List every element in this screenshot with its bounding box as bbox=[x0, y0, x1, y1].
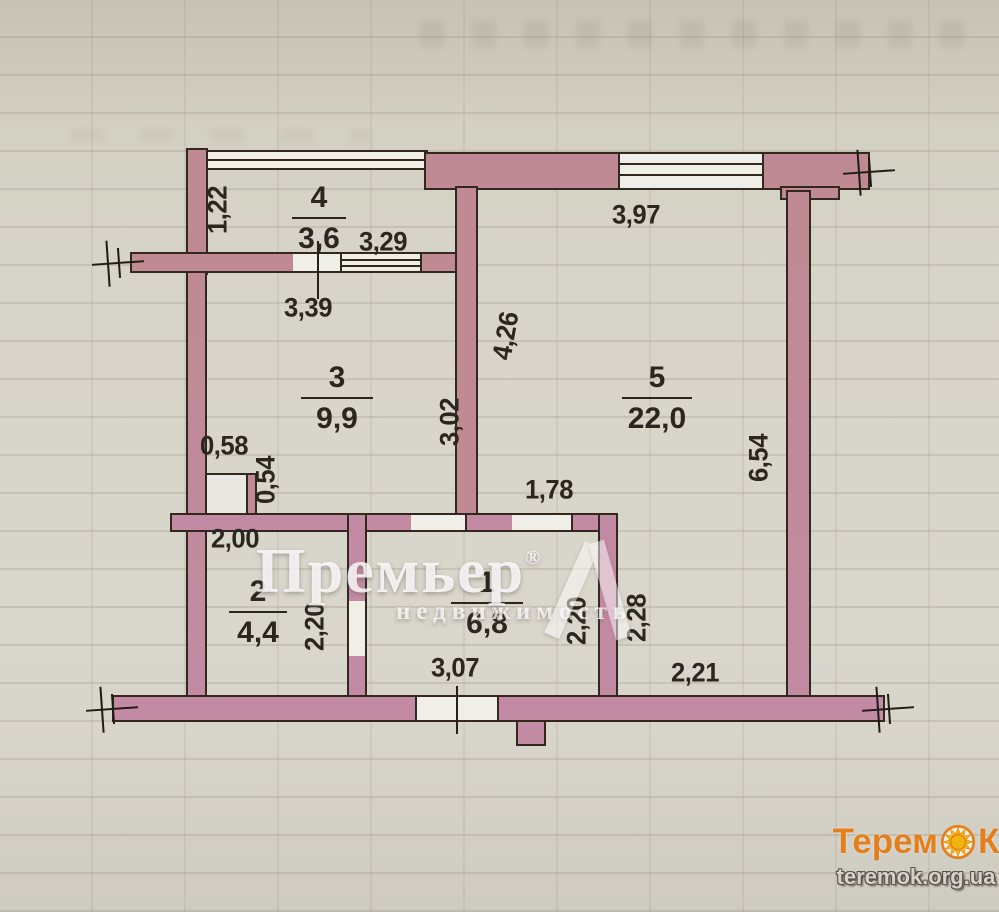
wall-bottom-tab bbox=[516, 720, 546, 746]
agency-logo-name: Терем bbox=[836, 822, 996, 862]
wall-balcony-sill-left bbox=[130, 252, 295, 273]
dim-corridor-height: 2,28 bbox=[622, 594, 653, 642]
paper-bleed-through-2 bbox=[70, 128, 370, 142]
dim-divider-upper: 4,26 bbox=[487, 310, 526, 363]
dim-shaft-height: 0,54 bbox=[251, 456, 282, 504]
axis-mark-top-right bbox=[841, 144, 897, 200]
room-area: 22,0 bbox=[622, 403, 692, 435]
dim-corridor-width: 2,21 bbox=[671, 658, 719, 689]
dim-shaft-width: 0,58 bbox=[200, 431, 248, 462]
room-label-bathroom: 2 4,4 bbox=[229, 576, 287, 650]
dim-bathroom-height: 2,20 bbox=[300, 603, 331, 651]
dim-balcony-depth: 1,22 bbox=[203, 186, 234, 234]
room-area: 3,6 bbox=[292, 223, 346, 255]
agency-logo: Терем bbox=[836, 822, 996, 890]
dim-living-width: 3,97 bbox=[612, 200, 660, 231]
wall-hall-top-mid bbox=[465, 513, 514, 532]
dim-hall-top-width: 1,78 bbox=[525, 475, 573, 506]
room-area: 6,8 bbox=[451, 608, 523, 640]
wall-hall-corridor-divider bbox=[598, 513, 618, 708]
room-number: 3 bbox=[301, 362, 373, 394]
axis-mark-bottom-right bbox=[860, 681, 916, 737]
door-opening-bathroom bbox=[347, 601, 367, 656]
room-label-divider bbox=[292, 217, 346, 219]
paper-bleed-through bbox=[420, 20, 980, 48]
wall-left bbox=[186, 271, 207, 708]
dim-hall-width: 3,07 bbox=[431, 653, 479, 684]
room-number: 5 bbox=[622, 362, 692, 394]
duct-shaft bbox=[205, 473, 248, 515]
dim-hall-height: 2,20 bbox=[562, 597, 593, 645]
room-number: 2 bbox=[229, 576, 287, 608]
axis-mark-bottom-left bbox=[84, 681, 140, 737]
window-pane-line bbox=[342, 265, 420, 267]
room-label-divider bbox=[451, 602, 523, 604]
room-label-divider bbox=[301, 397, 373, 399]
window-pane-line bbox=[620, 174, 762, 176]
door-opening-kitchen bbox=[411, 513, 467, 532]
window-pane-line bbox=[208, 159, 426, 161]
wall-right bbox=[786, 190, 811, 707]
registered-mark: ® bbox=[525, 547, 542, 569]
dim-kitchen-width: 3,39 bbox=[284, 293, 332, 324]
window-living-room bbox=[618, 152, 764, 190]
window-pane-line bbox=[620, 163, 762, 165]
entrance-axis-tick bbox=[456, 686, 458, 734]
sun-icon bbox=[939, 824, 977, 860]
dim-balcony-width: 3,29 bbox=[359, 227, 407, 258]
agency-url: teremok.org.ua bbox=[836, 864, 996, 890]
room-label-hall: 1 6,8 bbox=[451, 567, 523, 641]
room-number: 4 bbox=[292, 182, 346, 214]
dim-bathroom-width: 2,00 bbox=[211, 524, 259, 555]
room-label-living-room: 5 22,0 bbox=[622, 362, 692, 436]
room-label-divider bbox=[622, 397, 692, 399]
room-number: 1 bbox=[451, 567, 523, 599]
room-label-kitchen: 3 9,9 bbox=[301, 362, 373, 436]
window-balcony-top bbox=[206, 150, 428, 170]
dim-living-height: 6,54 bbox=[744, 434, 775, 482]
door-opening-living-room bbox=[512, 513, 573, 532]
dim-kitchen-height: 3,02 bbox=[435, 398, 466, 446]
room-label-divider bbox=[229, 611, 287, 613]
room-area: 4,4 bbox=[229, 617, 287, 649]
wall-hall-top-left bbox=[170, 513, 413, 532]
axis-mark-left bbox=[90, 235, 146, 291]
wall-kitchen-living-divider bbox=[455, 186, 478, 526]
logo-text-end: К bbox=[978, 822, 999, 862]
floor-plan-photo: 4 3,6 3 9,9 5 22,0 2 4,4 1 6,8 1,22 3,29… bbox=[0, 0, 999, 912]
logo-text-start: Терем bbox=[833, 822, 938, 862]
room-label-balcony: 4 3,6 bbox=[292, 182, 346, 256]
window-pane-line bbox=[342, 259, 420, 261]
room-area: 9,9 bbox=[301, 403, 373, 435]
